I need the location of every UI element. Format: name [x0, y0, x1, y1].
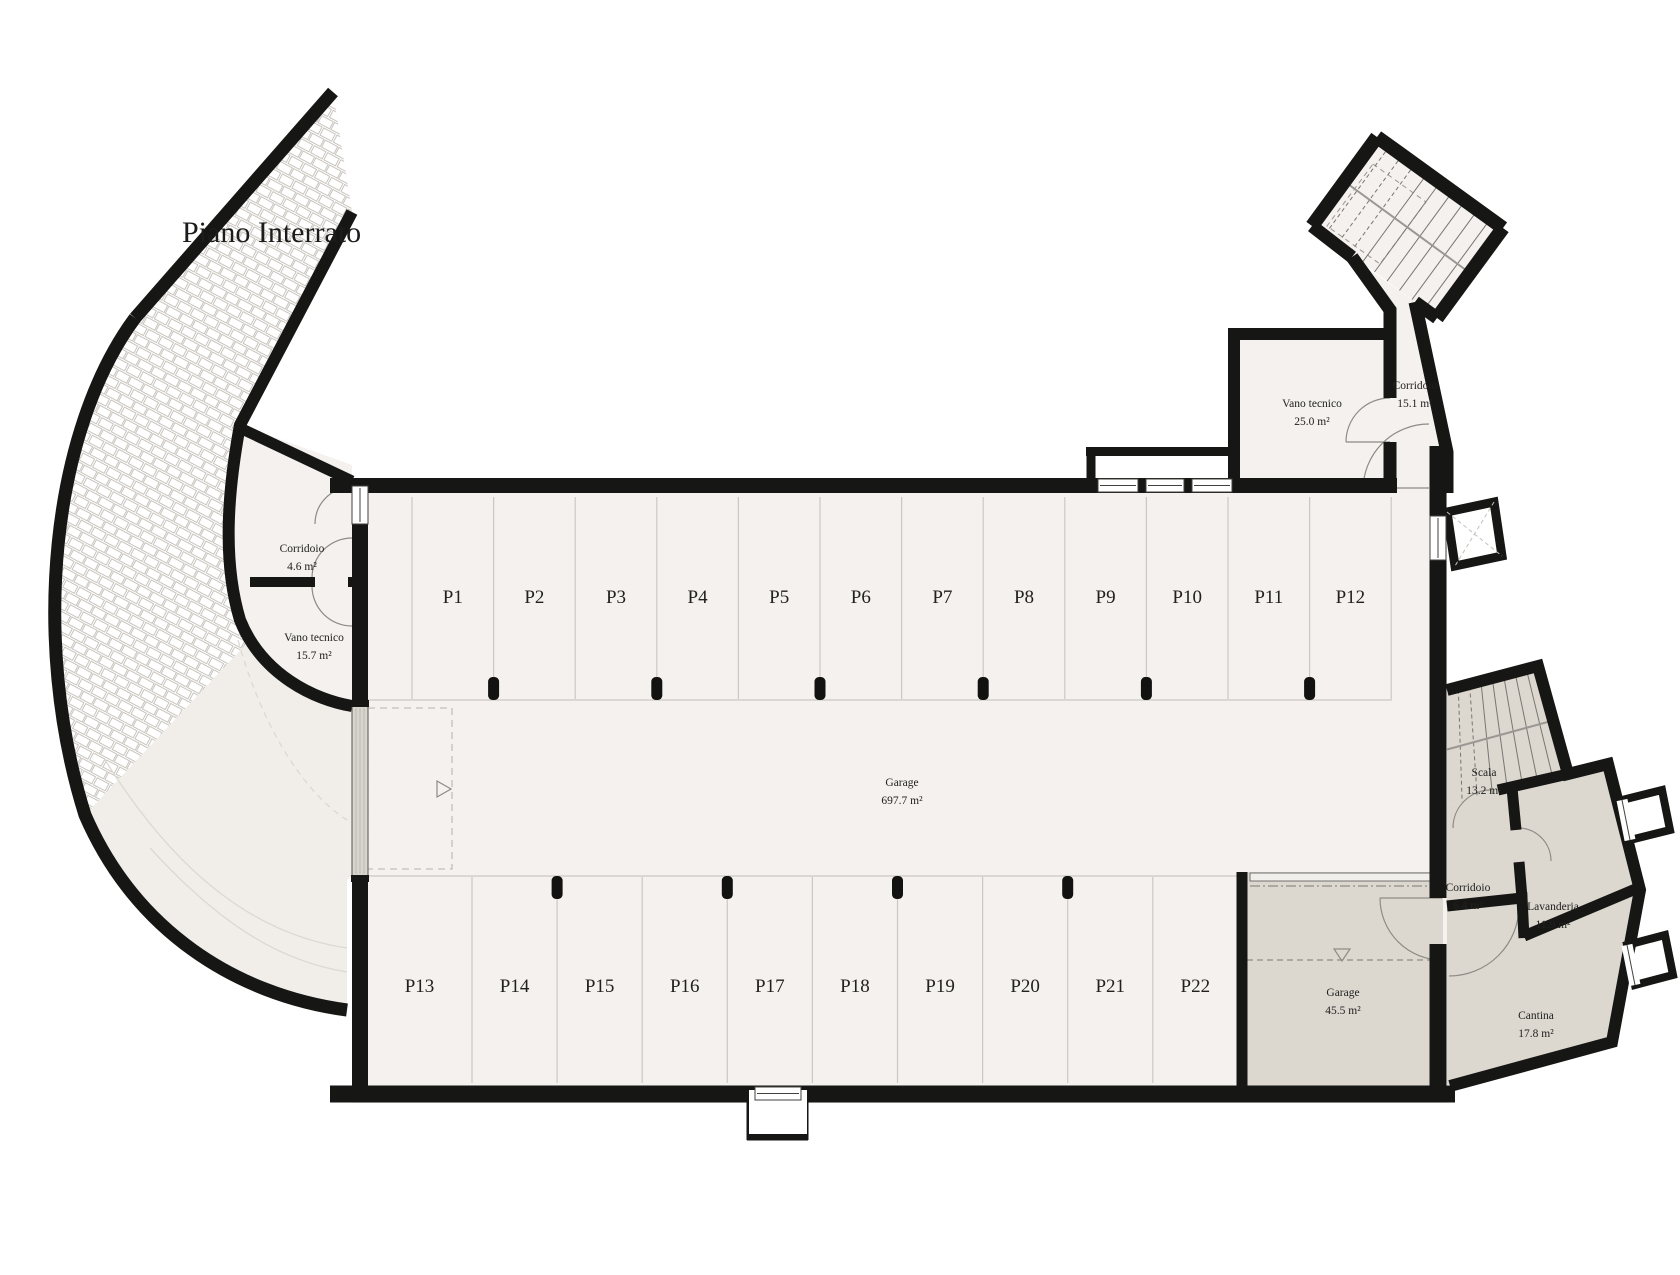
- parking-stall-label: P15: [585, 976, 615, 997]
- parking-stall-label: P5: [769, 587, 789, 608]
- column: [892, 876, 903, 899]
- parking-stall-label: P16: [670, 976, 700, 997]
- label-corridoio-ovest-name: Corridoio: [280, 543, 325, 555]
- column: [1141, 677, 1152, 700]
- parking-stall-label: P1: [443, 587, 463, 608]
- label-vano-tecnico-ovest-name: Vano tecnico: [284, 632, 344, 644]
- parking-stall-label: P3: [606, 587, 626, 608]
- parking-stall-label: P2: [524, 587, 544, 608]
- label-garage-area: 697.7 m²: [881, 795, 923, 807]
- parking-stall-label: P8: [1014, 587, 1034, 608]
- parking-stall-label: P13: [405, 976, 435, 997]
- garage-privato-floor: [1242, 872, 1443, 1099]
- parking-stall-label: P17: [755, 976, 785, 997]
- west-window: [352, 486, 368, 524]
- floor-plan-canvas: P1P2P3P4P5P6P7P8P9P10P11P12 P13P14P15P16…: [0, 0, 1680, 1275]
- label-corridoio-est-name: Corridoio: [1446, 882, 1491, 894]
- label-scala-area: 13.2 m²: [1466, 785, 1502, 797]
- parking-stall-label: P12: [1336, 587, 1366, 608]
- sectional-door-east: [1250, 873, 1438, 881]
- parking-stall-label: P10: [1172, 587, 1202, 608]
- parking-stall-label: P21: [1095, 976, 1125, 997]
- column: [722, 876, 733, 899]
- parking-stall-label: P18: [840, 976, 870, 997]
- label-cantina-area: 17.8 m²: [1518, 1028, 1554, 1040]
- label-garage-privato-name: Garage: [1326, 987, 1359, 999]
- column: [1062, 876, 1073, 899]
- label-corridoio-nord-area: 15.1 m²: [1397, 398, 1433, 410]
- label-vano-tecnico-ovest-area: 15.7 m²: [296, 650, 332, 662]
- label-vano-tecnico-nord-name: Vano tecnico: [1282, 398, 1342, 410]
- column: [978, 677, 989, 700]
- plan-title: Piano Interrato: [182, 216, 361, 249]
- column: [552, 876, 563, 899]
- label-scala-name: Scala: [1472, 767, 1497, 779]
- parking-stall-label: P6: [851, 587, 871, 608]
- parking-stall-label: P22: [1181, 976, 1211, 997]
- ramp-sectional-door: [351, 700, 369, 882]
- column: [1304, 677, 1315, 700]
- vano-tecnico-nord-floor: [1228, 328, 1397, 493]
- parking-stall-label: P14: [500, 976, 530, 997]
- north-recess-windows: [1098, 479, 1232, 492]
- parking-stall-label: P20: [1010, 976, 1040, 997]
- north-recess-floor: [1094, 453, 1236, 480]
- column: [488, 677, 499, 700]
- column: [651, 677, 662, 700]
- label-corridoio-nord-name: Corridoio: [1393, 380, 1438, 392]
- parking-stall-label: P11: [1254, 587, 1283, 608]
- parking-stall-label: P9: [1096, 587, 1116, 608]
- column: [815, 677, 826, 700]
- label-garage-name: Garage: [885, 777, 918, 789]
- parking-stall-label: P4: [688, 587, 709, 608]
- label-corridoio-ovest-area: 4.6 m²: [287, 561, 317, 573]
- label-cantina-name: Cantina: [1518, 1010, 1554, 1022]
- label-vano-tecnico-nord-area: 25.0 m²: [1294, 416, 1330, 428]
- floor-plan-page: P1P2P3P4P5P6P7P8P9P10P11P12 P13P14P15P16…: [0, 0, 1680, 1275]
- parking-stall-label: P19: [925, 976, 955, 997]
- parking-stall-label: P7: [932, 587, 952, 608]
- label-garage-privato-area: 45.5 m²: [1325, 1005, 1361, 1017]
- label-lavanderia-area: 11.9 m²: [1536, 919, 1572, 931]
- label-lavanderia-name: Lavanderia: [1527, 901, 1579, 913]
- south-window: [755, 1087, 801, 1100]
- label-corridoio-est-area: 6.4 m²: [1453, 900, 1483, 912]
